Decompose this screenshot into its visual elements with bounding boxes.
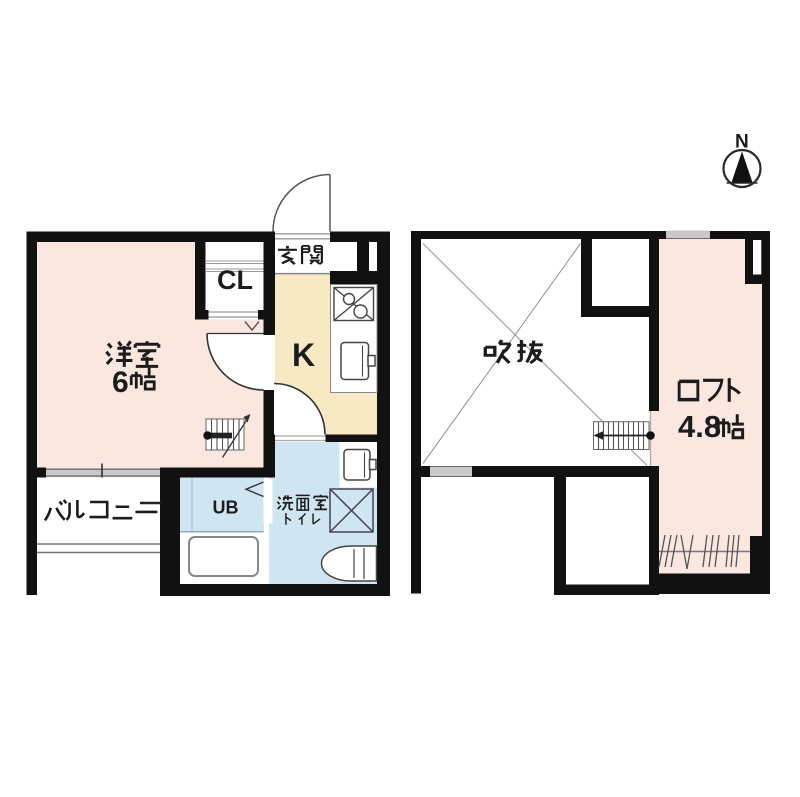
svg-text:K: K [292,337,315,373]
svg-text:4.8: 4.8 [678,409,721,444]
svg-text:UB: UB [213,498,239,518]
svg-text:CL: CL [217,265,253,295]
svg-text:6: 6 [112,366,129,399]
